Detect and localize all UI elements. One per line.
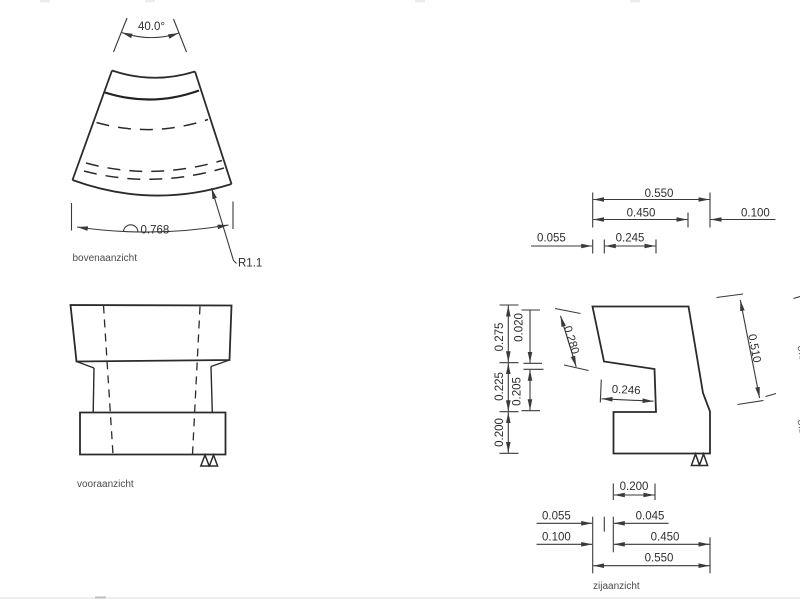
top-view: 40.0° 0.768 R1.1 bovenaanzicht bbox=[72, 18, 263, 270]
dim-b: 0.245 bbox=[616, 233, 645, 245]
clipped-dim-1: 0.500 bbox=[794, 344, 800, 375]
top-view-hidden-arc-3 bbox=[84, 168, 224, 179]
front-hidden-line-left bbox=[104, 306, 114, 455]
front-hidden-line-right bbox=[193, 307, 201, 455]
dim-edge-left: 0.280 bbox=[561, 325, 581, 356]
dim-total-width: 0.550 bbox=[645, 188, 674, 200]
dim-edge-right: 0.510 bbox=[745, 333, 762, 364]
angle-arc-line bbox=[122, 33, 180, 38]
side-top-dimensions: 0.550 0.450 0.100 0.055 0.245 bbox=[531, 188, 776, 254]
dim-b-lower: 0.450 bbox=[651, 532, 680, 544]
ext-line bbox=[794, 297, 800, 299]
side-aligned-dimensions: 0.280 0.510 0.246 bbox=[555, 294, 764, 405]
dim-line-notch-depth bbox=[602, 399, 654, 401]
dim-b-b: 0.045 bbox=[636, 511, 665, 523]
top-view-right-edge bbox=[195, 72, 232, 185]
dim-b-total: 0.550 bbox=[645, 553, 674, 565]
front-base-block bbox=[80, 413, 226, 455]
support-triangle-icon bbox=[699, 454, 707, 466]
side-left-dimensions: 0.275 0.225 0.200 0.020 0.205 bbox=[494, 305, 544, 453]
angle-value: 40.0° bbox=[138, 21, 165, 33]
ext-line bbox=[766, 394, 777, 397]
dim-h-notch: 0.205 bbox=[512, 377, 524, 406]
top-view-outer-arc bbox=[73, 180, 232, 196]
drawing-canvas: 40.0° 0.768 R1.1 bovenaanzicht vooraanzi… bbox=[0, 0, 800, 600]
dim-b-a: 0.055 bbox=[542, 511, 571, 523]
dim-b-c: 0.100 bbox=[542, 532, 571, 544]
angle-dimension: 40.0° bbox=[114, 18, 187, 52]
side-bottom-dimensions: 0.200 0.055 0.045 0.100 0.450 0.550 bbox=[537, 481, 711, 573]
front-top-block bbox=[71, 305, 232, 362]
top-view-hidden-arc-1 bbox=[97, 120, 209, 130]
dim-offset: 0.100 bbox=[741, 208, 770, 220]
dim-upper-width: 0.450 bbox=[627, 208, 656, 220]
dim-h-mid: 0.225 bbox=[494, 372, 506, 401]
side-view: 0.550 0.450 0.100 0.055 0.245 0.275 0.22… bbox=[494, 188, 776, 592]
dim-a: 0.055 bbox=[537, 233, 566, 245]
front-mid-right bbox=[211, 367, 212, 413]
ext-line bbox=[555, 309, 581, 314]
ext-line bbox=[738, 401, 764, 405]
angle-ext-left bbox=[114, 18, 128, 52]
arc-symbol-icon bbox=[124, 225, 138, 232]
dim-h-top: 0.275 bbox=[494, 323, 506, 352]
technical-drawing: 40.0° 0.768 R1.1 bovenaanzicht vooraanzi… bbox=[0, 0, 800, 600]
front-shoulder-left bbox=[77, 362, 95, 369]
top-view-label: bovenaanzicht bbox=[73, 253, 138, 264]
side-view-label: zijaanzicht bbox=[593, 581, 640, 592]
support-triangle-icon bbox=[201, 455, 209, 466]
side-profile bbox=[593, 307, 711, 454]
ext-line bbox=[717, 294, 744, 298]
front-mid-left bbox=[93, 368, 94, 413]
dim-b-notch: 0.200 bbox=[620, 481, 649, 493]
arclen-value: 0.768 bbox=[141, 225, 170, 237]
dim-h-step: 0.020 bbox=[514, 313, 526, 342]
top-view-hidden-arc-2 bbox=[86, 161, 222, 172]
dim-h-base: 0.200 bbox=[494, 418, 506, 447]
support-triangle-icon bbox=[691, 454, 699, 466]
clipped-dim-2: 0.200 bbox=[794, 418, 800, 449]
radius-value: R1.1 bbox=[238, 258, 262, 270]
angle-ext-right bbox=[174, 19, 187, 52]
support-triangle-icon bbox=[209, 455, 217, 466]
arc-length-dimension: 0.768 bbox=[72, 202, 234, 237]
radius-leader: R1.1 bbox=[212, 188, 263, 270]
top-view-inner-arc bbox=[112, 71, 195, 78]
front-view-label: vooraanzicht bbox=[77, 479, 134, 490]
front-view: vooraanzicht bbox=[71, 305, 232, 490]
top-view-second-arc bbox=[105, 91, 199, 100]
dim-notch-depth: 0.246 bbox=[611, 384, 640, 397]
ext-line bbox=[600, 380, 601, 403]
clipped-edge-fragments: 0.500 0.200 bbox=[766, 297, 800, 449]
edge-artifacts bbox=[0, 1, 800, 598]
